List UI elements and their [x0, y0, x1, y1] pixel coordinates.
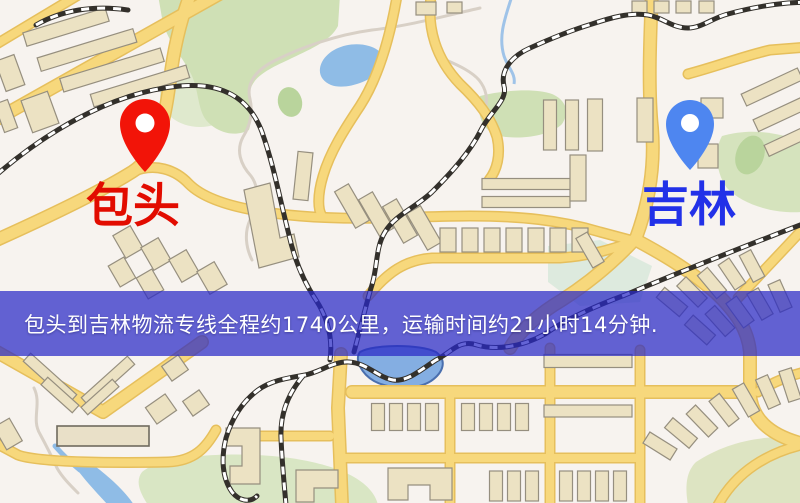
route-info-text: 包头到吉林物流专线全程约1740公里，运输时间约21小时14分钟.	[24, 309, 658, 339]
destination-city-label: 吉林	[642, 178, 736, 233]
map-screenshot: 包头 吉林 包头到吉林物流专线全程约1740公里，运输时间约21小时14分钟.	[0, 0, 800, 503]
map-canvas[interactable]: 包头 吉林	[0, 0, 800, 503]
origin-city-label: 包头	[86, 179, 180, 234]
route-info-banner: 包头到吉林物流专线全程约1740公里，运输时间约21小时14分钟.	[0, 291, 800, 356]
